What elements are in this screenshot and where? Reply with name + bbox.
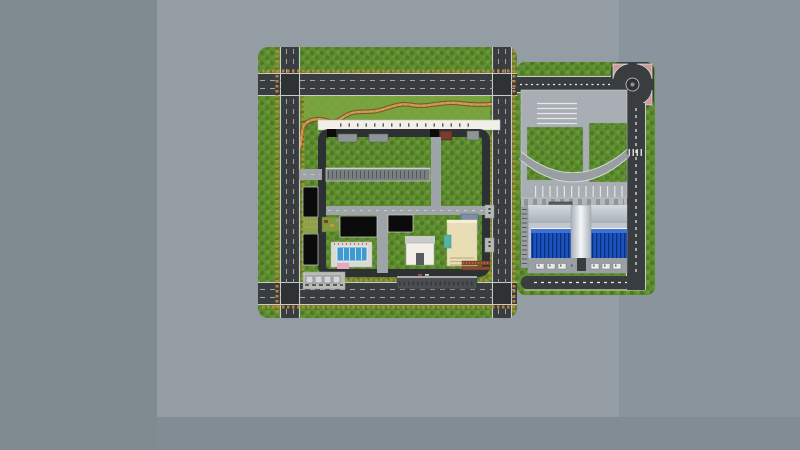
cream-hall-ridge[interactable] <box>447 220 477 223</box>
west-shed-2[interactable] <box>303 234 318 265</box>
city-map-svg[interactable] <box>0 0 800 450</box>
campus-entrance-path[interactable] <box>299 169 322 180</box>
scene-root <box>0 0 800 450</box>
bus-shelter-3[interactable] <box>324 276 331 283</box>
car-1[interactable] <box>536 264 544 270</box>
car-3[interactable] <box>558 264 566 270</box>
pergola-row-2[interactable] <box>462 267 490 271</box>
intersection-br[interactable] <box>493 283 511 304</box>
black-roof-building-1[interactable] <box>340 216 377 237</box>
car-2[interactable] <box>547 264 555 270</box>
cream-hall[interactable] <box>447 220 477 266</box>
game-viewport <box>0 0 800 450</box>
station-entrance[interactable] <box>577 258 586 271</box>
map-left-block[interactable] <box>258 47 517 318</box>
car-4[interactable] <box>591 264 599 270</box>
roadside-stop-1[interactable] <box>485 205 494 218</box>
campus-path-north[interactable] <box>431 137 441 207</box>
pink-mat[interactable] <box>337 263 349 269</box>
blue-roof-east-light[interactable] <box>591 229 627 233</box>
station-blue-roof-east[interactable] <box>591 229 627 258</box>
light-green-band[interactable] <box>304 96 490 120</box>
road-junction-fill[interactable] <box>627 276 645 290</box>
intersection-tr[interactable] <box>493 74 511 95</box>
canopy-1[interactable] <box>338 134 357 142</box>
black-roof-building-2[interactable] <box>388 215 413 232</box>
bus-shelter-4[interactable] <box>333 276 340 283</box>
bus-shelter-2[interactable] <box>315 276 322 283</box>
canopy-2[interactable] <box>369 134 388 142</box>
west-shed-1[interactable] <box>303 187 318 217</box>
intersection-bl[interactable] <box>281 283 299 304</box>
bike-racks[interactable] <box>303 218 318 233</box>
map-right-block[interactable] <box>517 62 655 295</box>
roundabout-center[interactable] <box>631 83 635 87</box>
classroom-building[interactable] <box>326 168 430 181</box>
intersection-tl[interactable] <box>281 74 299 95</box>
campus-path-south[interactable] <box>377 215 388 273</box>
swimming-pool[interactable] <box>337 247 367 261</box>
station-blue-roof-west[interactable] <box>531 229 571 258</box>
blue-roof-west-light[interactable] <box>531 229 571 233</box>
campus-gate-west[interactable] <box>327 129 336 137</box>
campus-gate-east[interactable] <box>430 129 439 137</box>
car-5[interactable] <box>602 264 610 270</box>
car-6[interactable] <box>613 264 621 270</box>
canopy-3[interactable] <box>467 131 479 140</box>
red-kiosk[interactable] <box>440 131 452 140</box>
garden-dot-2[interactable] <box>330 224 334 227</box>
garden-dot-1[interactable] <box>324 220 328 223</box>
canvas-bottom-area <box>157 417 800 450</box>
teal-accent[interactable] <box>444 235 451 248</box>
bus-shelter-1[interactable] <box>306 276 313 283</box>
white-u-building-court[interactable] <box>416 253 424 265</box>
garden-dot-3[interactable] <box>336 219 339 222</box>
